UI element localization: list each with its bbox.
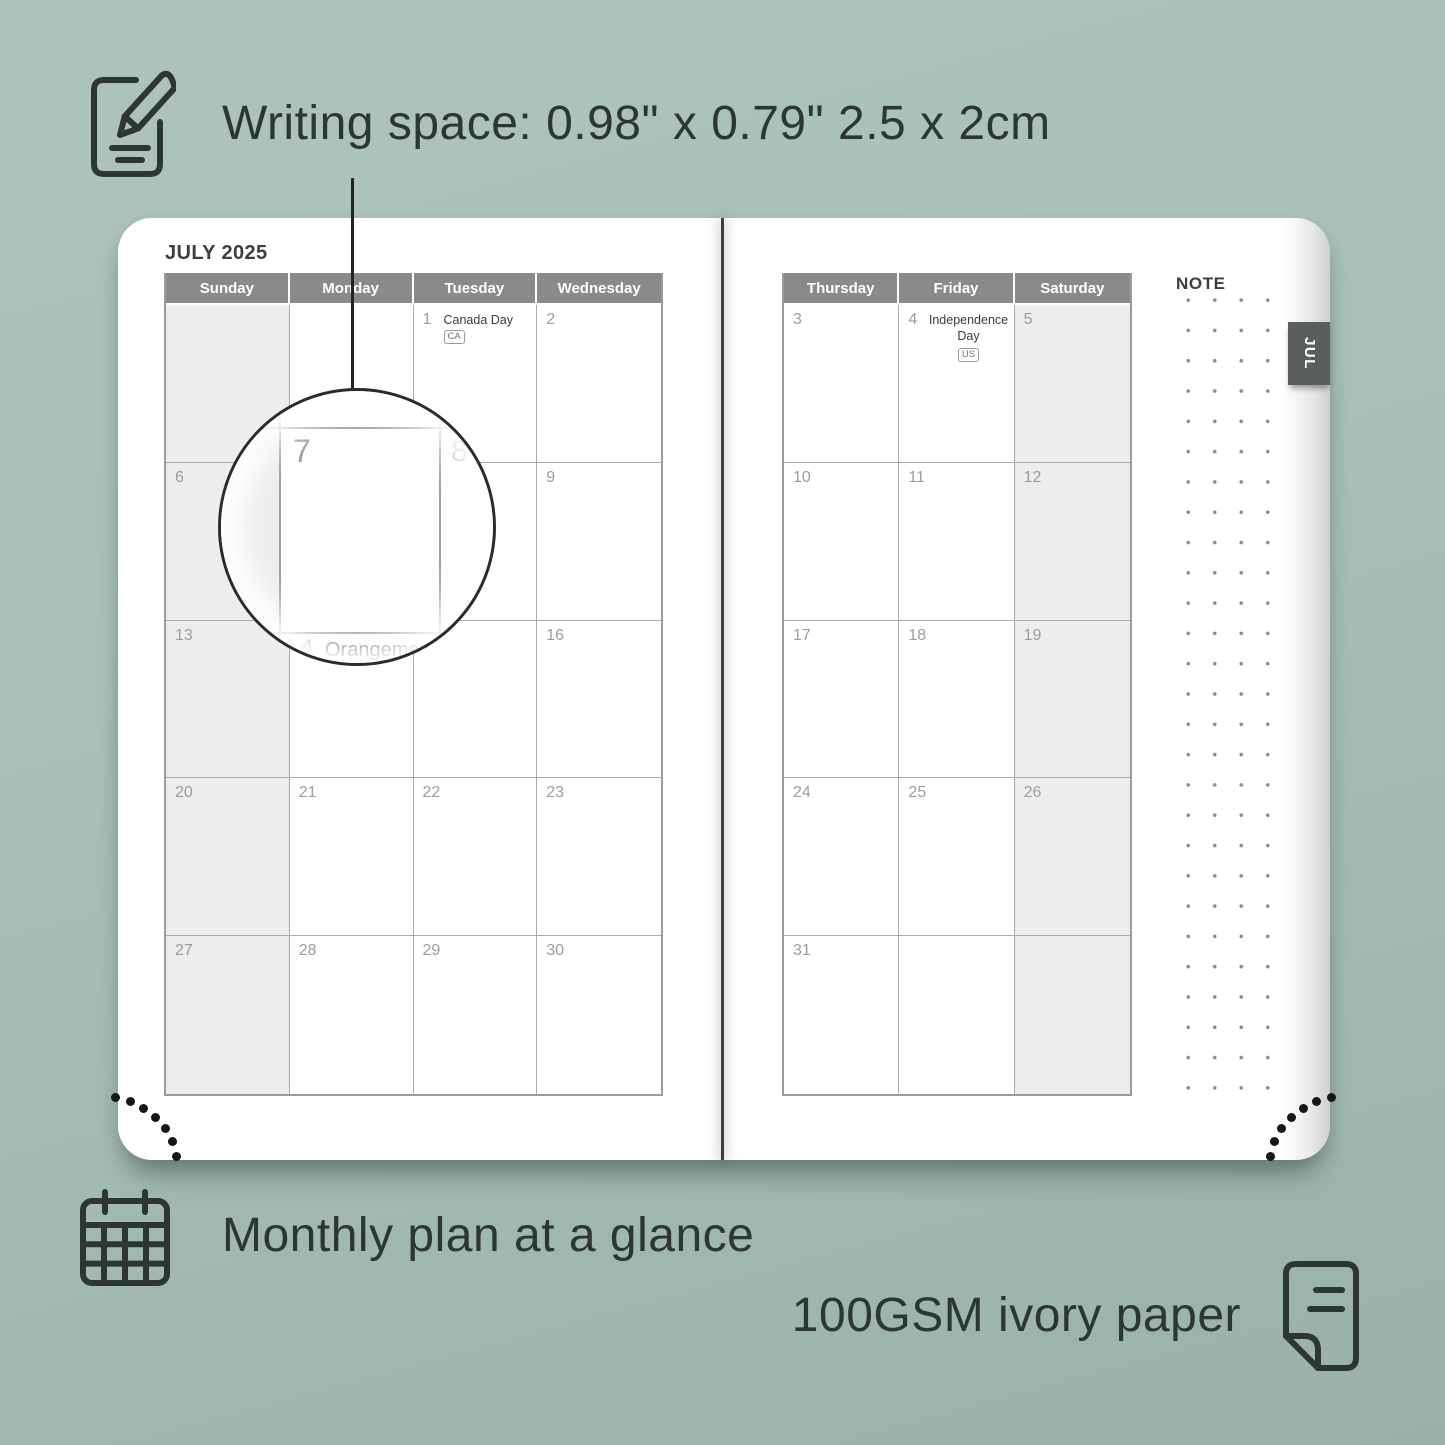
tear-corner-dot bbox=[139, 1104, 148, 1113]
magnified-grid-line bbox=[221, 632, 493, 634]
day-number: 26 bbox=[1024, 784, 1042, 802]
day-number: 4 bbox=[908, 311, 917, 329]
day-cell: 10 bbox=[784, 463, 899, 621]
holiday-label: Canada Day CA bbox=[444, 312, 534, 345]
day-number: 24 bbox=[793, 784, 811, 802]
leader-line bbox=[351, 178, 354, 390]
day-number: 17 bbox=[793, 627, 811, 645]
day-number: 6 bbox=[175, 469, 184, 487]
weekday-header: Wednesday bbox=[537, 273, 661, 303]
product-image: { "colors": { "background": "#a9c0b8", "… bbox=[0, 0, 1445, 1445]
weekday-header-row: ThursdayFridaySaturday bbox=[784, 273, 1130, 305]
magnified-grid-line bbox=[439, 391, 441, 663]
tear-corner-dot bbox=[1266, 1152, 1275, 1161]
day-number: 27 bbox=[175, 942, 193, 960]
right-month-grid: ThursdayFridaySaturday 34Independence Da… bbox=[782, 273, 1132, 1096]
day-cell: 21 bbox=[290, 778, 414, 936]
day-number: 20 bbox=[175, 784, 193, 802]
tear-corner-dot bbox=[126, 1097, 135, 1106]
day-cell bbox=[899, 936, 1014, 1094]
day-cell: 26 bbox=[1015, 778, 1130, 936]
day-cell bbox=[1015, 936, 1130, 1094]
monthly-plan-annotation: Monthly plan at a glance bbox=[222, 1208, 754, 1263]
month-tab: JUL bbox=[1288, 322, 1330, 385]
day-number: 29 bbox=[423, 942, 441, 960]
day-number: 13 bbox=[175, 627, 193, 645]
weekday-header: Saturday bbox=[1015, 273, 1130, 303]
day-number: 10 bbox=[793, 469, 811, 487]
tear-corner-dot bbox=[1327, 1093, 1336, 1102]
day-cell: 27 bbox=[166, 936, 290, 1094]
paper-annotation: 100GSM ivory paper bbox=[792, 1288, 1241, 1343]
country-badge-row: US bbox=[926, 346, 1010, 362]
day-cell: 23 bbox=[537, 778, 661, 936]
day-number: 3 bbox=[793, 311, 802, 329]
day-cell: 11 bbox=[899, 463, 1014, 621]
magnified-day-number: 7 bbox=[293, 433, 311, 470]
day-cell: 28 bbox=[290, 936, 414, 1094]
day-cell: 3 bbox=[784, 305, 899, 463]
day-cell: 17 bbox=[784, 621, 899, 779]
day-cell: 5 bbox=[1015, 305, 1130, 463]
calendar-grid-icon bbox=[78, 1188, 172, 1288]
day-number: 5 bbox=[1024, 311, 1033, 329]
day-cell: 4Independence DayUS bbox=[899, 305, 1014, 463]
day-cell: 22 bbox=[414, 778, 538, 936]
tear-corner-dot bbox=[172, 1152, 181, 1161]
day-number: 23 bbox=[546, 784, 564, 802]
day-number: 31 bbox=[793, 942, 811, 960]
day-number: 9 bbox=[546, 469, 555, 487]
day-cell: 25 bbox=[899, 778, 1014, 936]
magnified-grid-line bbox=[279, 391, 281, 663]
day-number: 25 bbox=[908, 784, 926, 802]
weekday-header: Thursday bbox=[784, 273, 899, 303]
magnified-day-number: 8 bbox=[451, 435, 468, 469]
day-number: 30 bbox=[546, 942, 564, 960]
day-cell: 18 bbox=[899, 621, 1014, 779]
center-gutter bbox=[721, 218, 724, 1160]
magnified-grid-line bbox=[221, 427, 493, 429]
day-cell: 16 bbox=[537, 621, 661, 779]
day-cell: 9 bbox=[537, 463, 661, 621]
day-number: 19 bbox=[1024, 627, 1042, 645]
day-number: 28 bbox=[299, 942, 317, 960]
pencil-note-icon bbox=[84, 66, 176, 178]
day-cell: 2 bbox=[537, 305, 661, 463]
tear-corner-dot bbox=[1287, 1113, 1296, 1122]
day-number: 21 bbox=[299, 784, 317, 802]
right-grid-body: 34Independence DayUS51011121718192425263… bbox=[784, 305, 1130, 1094]
day-number: 11 bbox=[908, 469, 925, 487]
month-tab-label: JUL bbox=[1301, 337, 1318, 370]
day-cell: 19 bbox=[1015, 621, 1130, 779]
day-cell: 12 bbox=[1015, 463, 1130, 621]
weekday-header: Tuesday bbox=[414, 273, 538, 303]
tear-corner-dot bbox=[151, 1113, 160, 1122]
weekday-header-row: SundayMondayTuesdayWednesday bbox=[166, 273, 661, 305]
day-cell: 24 bbox=[784, 778, 899, 936]
tear-corner-dot bbox=[1299, 1104, 1308, 1113]
planner-notebook: JULY 2025 SundayMondayTuesdayWednesday 1… bbox=[118, 218, 1330, 1160]
month-title: JULY 2025 bbox=[165, 242, 268, 265]
day-number: 12 bbox=[1024, 469, 1042, 487]
magnified-holiday-label: Orangemen's D bbox=[325, 639, 464, 662]
magnified-shaded-column bbox=[221, 391, 279, 663]
day-number: 16 bbox=[546, 627, 564, 645]
paper-sheet-icon bbox=[1276, 1260, 1364, 1372]
magnifier-circle: 7 8 14 Orangemen's D bbox=[218, 388, 496, 666]
day-number: 18 bbox=[908, 627, 926, 645]
day-cell: 31 bbox=[784, 936, 899, 1094]
day-cell: 30 bbox=[537, 936, 661, 1094]
country-badge: CA bbox=[444, 330, 465, 344]
day-number: 2 bbox=[546, 311, 555, 329]
holiday-label: Independence DayUS bbox=[926, 312, 1010, 362]
tear-corner-dot bbox=[161, 1124, 170, 1133]
weekday-header: Friday bbox=[899, 273, 1014, 303]
day-cell: 20 bbox=[166, 778, 290, 936]
day-number: 22 bbox=[423, 784, 441, 802]
note-dot-grid bbox=[1172, 278, 1292, 1102]
note-label: NOTE bbox=[1174, 274, 1235, 296]
weekday-header: Sunday bbox=[166, 273, 290, 303]
day-cell: 29 bbox=[414, 936, 538, 1094]
writing-space-annotation: Writing space: 0.98" x 0.79" 2.5 x 2cm bbox=[222, 96, 1051, 151]
day-number: 1 bbox=[423, 311, 432, 329]
country-badge: US bbox=[958, 348, 979, 362]
magnified-day-number: 14 bbox=[283, 633, 314, 665]
